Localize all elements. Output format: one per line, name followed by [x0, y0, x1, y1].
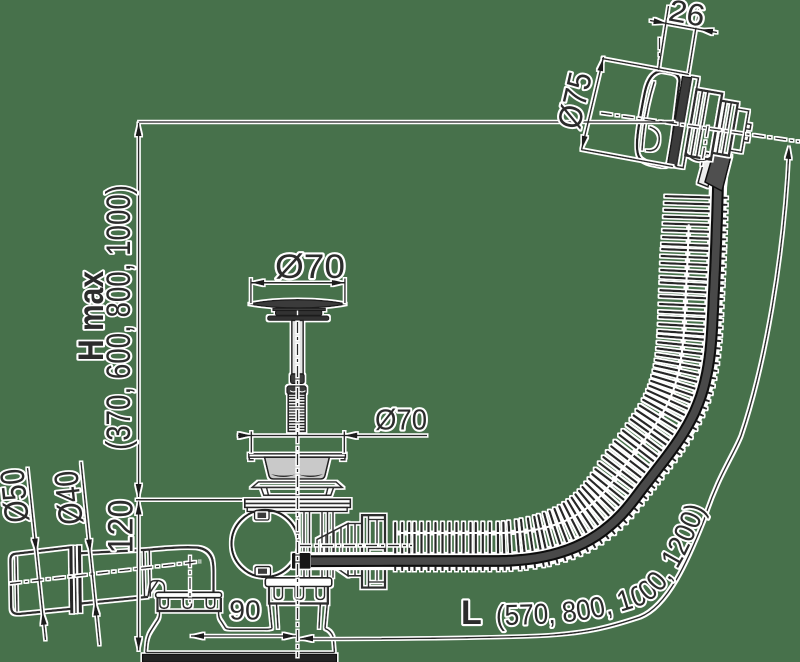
- svg-text:90: 90: [229, 595, 261, 626]
- svg-text:Ø50: Ø50: [0, 467, 37, 525]
- svg-text:Ø70: Ø70: [275, 248, 345, 286]
- svg-text:(370, 600, 800, 1000): (370, 600, 800, 1000): [100, 185, 138, 450]
- svg-text:120: 120: [102, 500, 141, 554]
- svg-text:Ø40: Ø40: [47, 469, 90, 527]
- svg-text:Ø70: Ø70: [375, 405, 427, 437]
- svg-text:L: L: [461, 594, 482, 632]
